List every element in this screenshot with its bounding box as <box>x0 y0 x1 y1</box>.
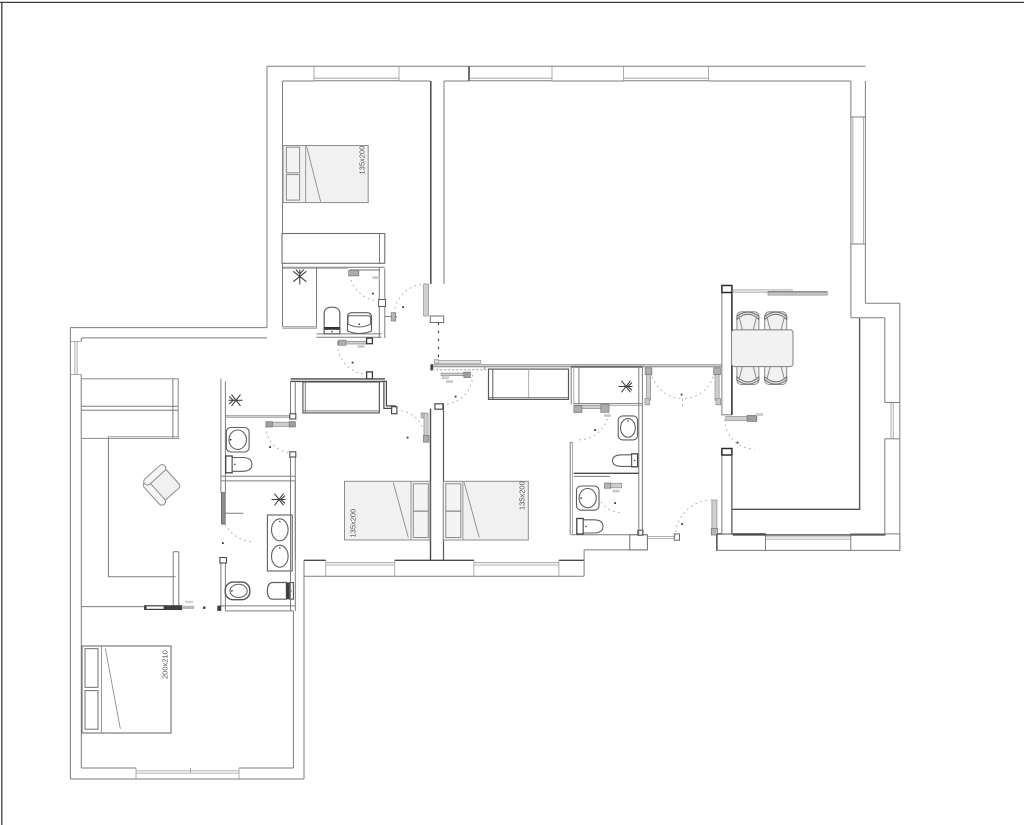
svg-text:135x200: 135x200 <box>349 509 358 538</box>
svg-text:135x200: 135x200 <box>358 146 367 175</box>
svg-text:200x210: 200x210 <box>161 650 170 679</box>
svg-text:135x200: 135x200 <box>518 481 527 510</box>
